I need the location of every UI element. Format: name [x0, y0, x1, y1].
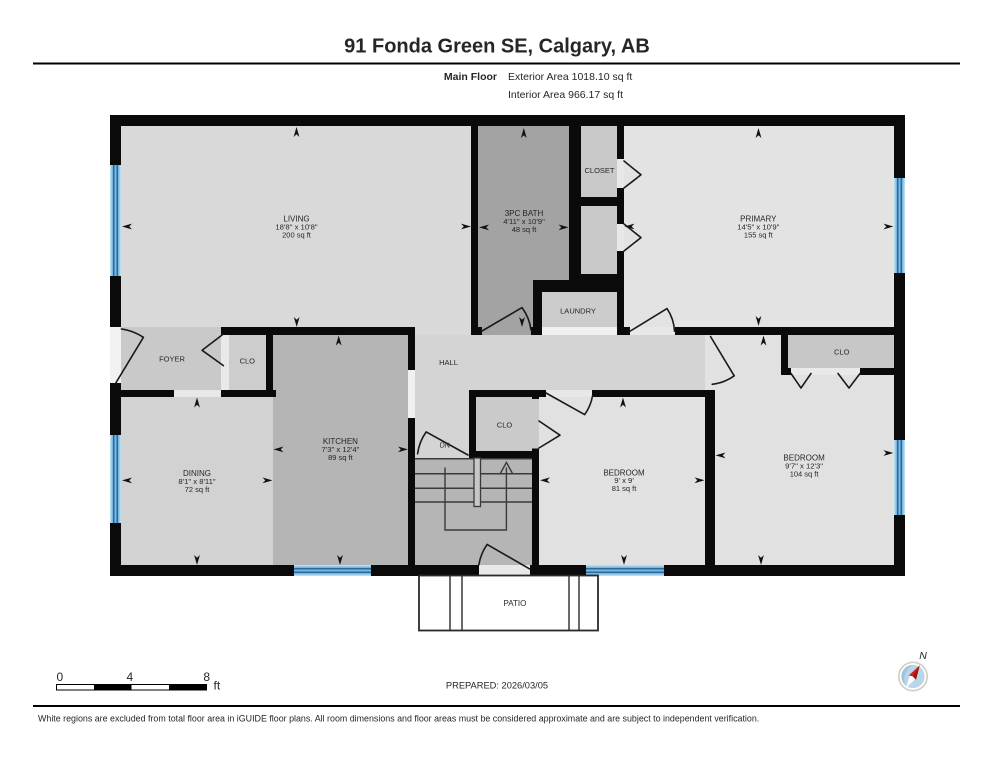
- svg-text:CLOSET: CLOSET: [584, 166, 614, 175]
- svg-text:104 sq ft: 104 sq ft: [790, 470, 820, 479]
- svg-text:Exterior Area 1018.10 sq ft: Exterior Area 1018.10 sq ft: [508, 71, 632, 83]
- svg-text:CLO: CLO: [497, 421, 513, 430]
- svg-text:89 sq ft: 89 sq ft: [328, 453, 354, 462]
- svg-text:Interior Area 966.17 sq ft: Interior Area 966.17 sq ft: [508, 89, 623, 101]
- svg-text:N: N: [919, 650, 927, 662]
- svg-text:81 sq ft: 81 sq ft: [612, 484, 638, 493]
- svg-text:91 Fonda Green SE, Calgary, AB: 91 Fonda Green SE, Calgary, AB: [344, 36, 650, 58]
- svg-text:155 sq ft: 155 sq ft: [744, 230, 774, 239]
- svg-text:4: 4: [127, 670, 134, 684]
- svg-text:48 sq ft: 48 sq ft: [512, 225, 538, 234]
- svg-text:8: 8: [203, 670, 210, 684]
- svg-text:White regions are excluded fro: White regions are excluded from total fl…: [38, 714, 759, 724]
- svg-text:CLO: CLO: [240, 357, 256, 366]
- svg-text:200 sq ft: 200 sq ft: [282, 230, 312, 239]
- svg-text:ft: ft: [214, 679, 221, 693]
- svg-text:CLO: CLO: [834, 347, 850, 356]
- svg-text:HALL: HALL: [439, 358, 458, 367]
- svg-text:FOYER: FOYER: [159, 355, 185, 364]
- svg-text:DN: DN: [440, 443, 450, 450]
- svg-text:0: 0: [56, 670, 63, 684]
- svg-text:LAUNDRY: LAUNDRY: [560, 307, 596, 316]
- svg-text:PREPARED: 2026/03/05: PREPARED: 2026/03/05: [446, 681, 548, 691]
- svg-text:PATIO: PATIO: [503, 599, 526, 608]
- svg-text:72 sq ft: 72 sq ft: [185, 485, 211, 494]
- svg-text:Main Floor: Main Floor: [444, 71, 497, 83]
